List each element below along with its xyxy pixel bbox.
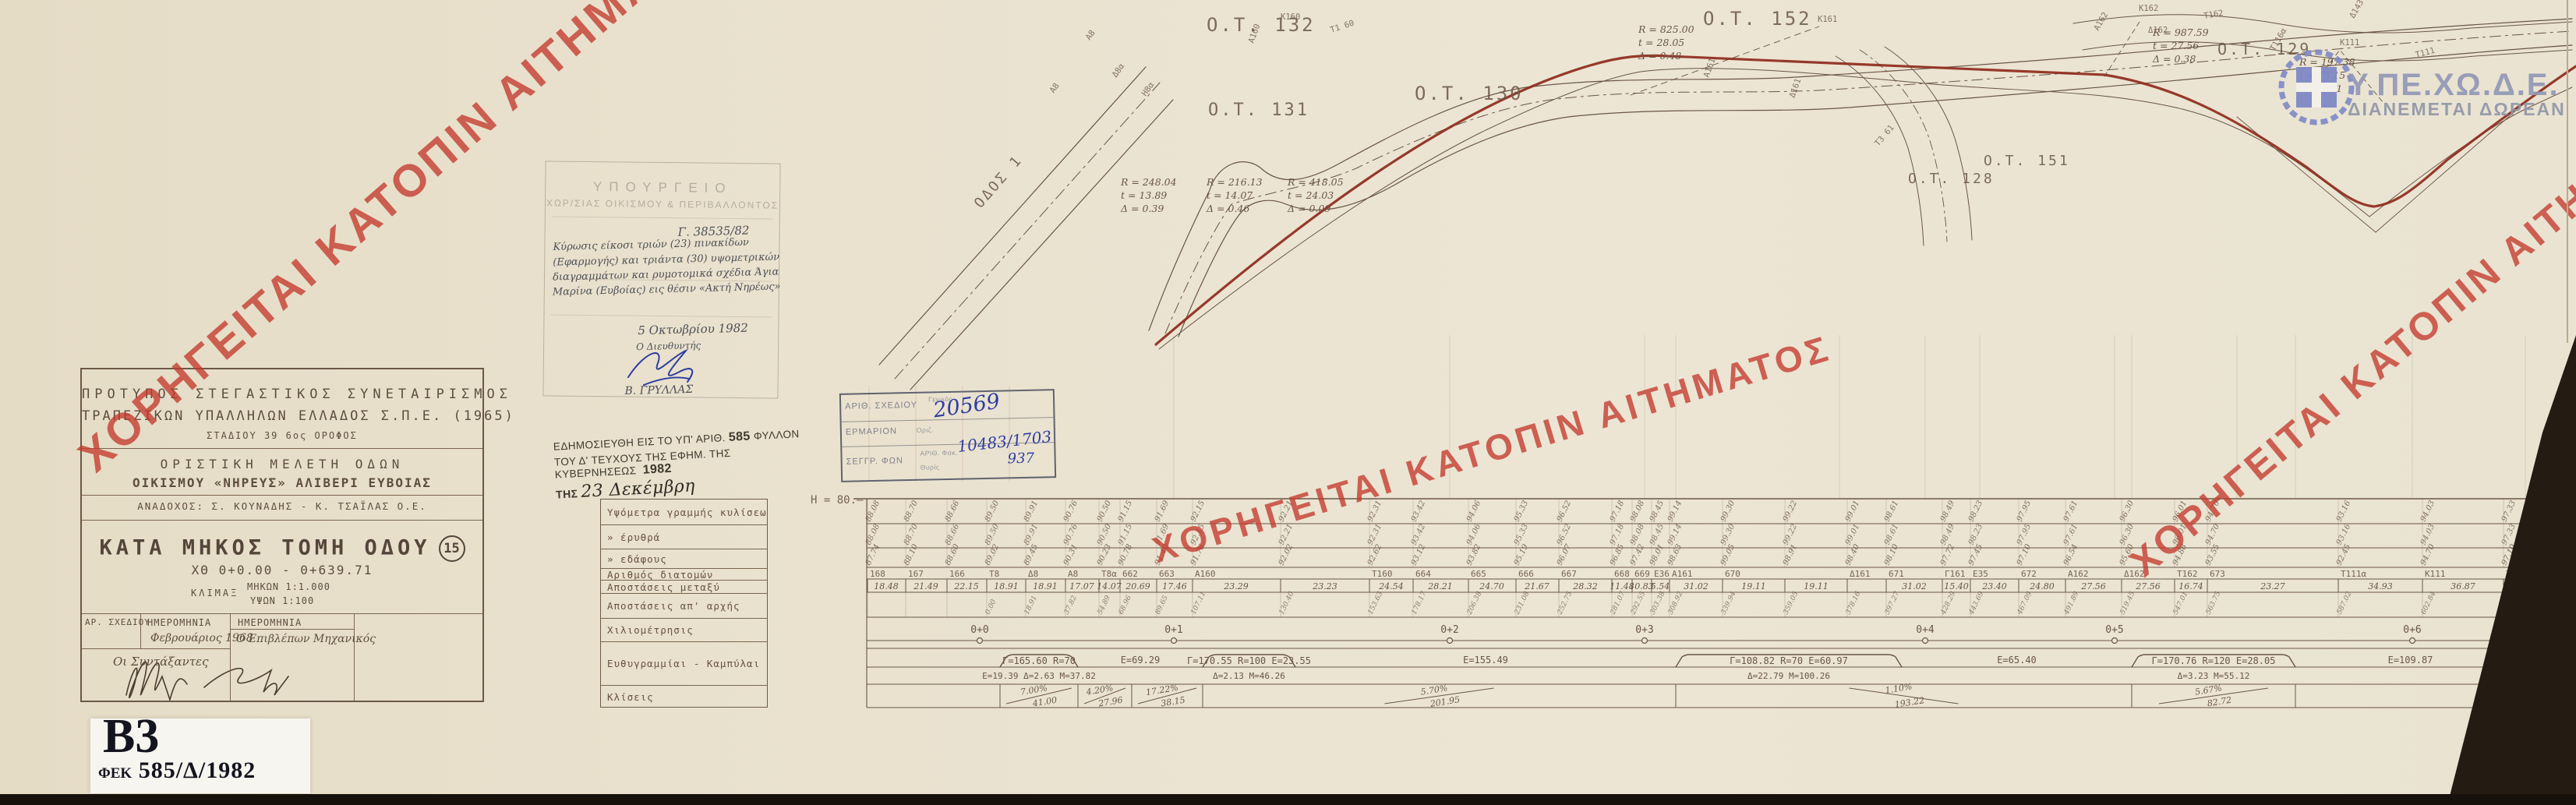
svg-text:88.70: 88.70: [903, 522, 921, 546]
svg-text:99.22: 99.22: [1782, 500, 1799, 524]
svg-text:98.10: 98.10: [1883, 542, 1901, 567]
svg-text:98.23: 98.23: [1967, 523, 1984, 547]
org-name-line2: ΤΡΑΠΕΖΙΚΩΝ ΥΠΑΛΛΗΛΩΝ ΕΛΛΑΔΟΣ Σ.Π.Ε. (196…: [82, 408, 482, 424]
svg-text:19.11: 19.11: [1804, 581, 1829, 591]
svg-text:Κ111: Κ111: [2340, 38, 2359, 48]
svg-text:89.91: 89.91: [1023, 500, 1040, 524]
svg-text:Γ161: Γ161: [1945, 569, 1966, 579]
svg-text:Τ160: Τ160: [1372, 569, 1393, 579]
svg-text:96.54: 96.54: [2062, 543, 2080, 567]
svg-text:O.T. 128: O.T. 128: [1908, 171, 1995, 187]
svg-text:90.31: 90.31: [1062, 543, 1080, 567]
svg-text:Κ161: Κ161: [1818, 15, 1837, 24]
svg-text:90.76: 90.76: [1062, 499, 1080, 523]
svg-text:Δ=3.23 Μ=55.12: Δ=3.23 Μ=55.12: [2178, 671, 2250, 681]
svg-text:97.45: 97.45: [1967, 543, 1984, 567]
svg-text:20.69: 20.69: [1125, 581, 1150, 591]
ministry-dept: ΧΩΡ/ΣΙΑΣ ΟΙΚΙΣΜΟΥ & ΠΕΡΙΒΑΛΛΟΝΤΟΣ: [546, 197, 779, 210]
supervisor-label: Ο Επιβλέπων Μηχανικός: [236, 633, 376, 645]
svg-text:Τ111: Τ111: [2506, 569, 2527, 579]
settlement-name: ΟΙΚΙΣΜΟΥ «ΝΗΡΕΥΣ» ΑΛΙΒΕΡΙ ΕΥΒΟΙΑΣ: [82, 475, 482, 490]
col-date: ΗΜΕΡΟΜΗΝΙΑ: [147, 617, 211, 628]
svg-text:90.23: 90.23: [1096, 543, 1113, 567]
svg-text:94.06: 94.06: [1465, 499, 1483, 523]
svg-text:15.40: 15.40: [1944, 581, 1969, 591]
svg-text:27.56: 27.56: [2135, 581, 2161, 591]
svg-text:664: 664: [1415, 569, 1431, 579]
svg-text:R = 248.04: R = 248.04: [1120, 176, 1177, 188]
svg-text:94.06: 94.06: [1465, 522, 1483, 546]
svg-text:98.49: 98.49: [1939, 522, 1957, 546]
svg-text:Γ=170.55 R=100 Ε=23.55: Γ=170.55 R=100 Ε=23.55: [1187, 655, 1311, 666]
svg-text:82.72: 82.72: [2207, 695, 2232, 709]
svg-text:Ε=65.40: Ε=65.40: [1997, 655, 2037, 666]
svg-text:92.62: 92.62: [1366, 543, 1383, 567]
svg-text:88.60: 88.60: [944, 542, 962, 567]
svg-text:Τ8: Τ8: [989, 569, 999, 579]
svg-text:Δ8α: Δ8α: [1111, 62, 1127, 79]
svg-text:88.66: 88.66: [944, 499, 962, 523]
svg-text:97.61: 97.61: [2062, 523, 2080, 547]
archive-slot-number: 937: [1007, 450, 1034, 468]
svg-text:98.61: 98.61: [1883, 500, 1900, 524]
svg-text:94.70: 94.70: [2204, 522, 2222, 546]
svg-text:93.16: 93.16: [2335, 522, 2353, 546]
svg-text:R = 216.13: R = 216.13: [1206, 176, 1263, 188]
svg-text:92.02: 92.02: [1277, 543, 1295, 567]
svg-text:0+6: 0+6: [2403, 624, 2421, 636]
svg-text:95.33: 95.33: [1513, 523, 1530, 547]
archive-file-number: 10483/1703: [956, 427, 1052, 456]
svg-text:97.18: 97.18: [1609, 500, 1626, 524]
svg-text:Δ = 0.38: Δ = 0.38: [2152, 53, 2196, 65]
svg-text:91.40: 91.40: [1154, 542, 1171, 567]
svg-text:89.50: 89.50: [984, 522, 1002, 546]
svg-text:18.91: 18.91: [994, 581, 1019, 591]
svg-text:98.91: 98.91: [1782, 543, 1799, 567]
svg-text:669: 669: [1634, 569, 1650, 579]
svg-text:89.45: 89.45: [1023, 543, 1040, 567]
svg-text:96.30: 96.30: [2118, 499, 2136, 523]
svg-text:19.11: 19.11: [1741, 581, 1766, 591]
svg-text:Α162: Α162: [2068, 569, 2089, 579]
svg-text:Γ=165.60 R=70: Γ=165.60 R=70: [1002, 655, 1076, 666]
chainage: ΧΘ 0+0.00 - 0+639.71: [82, 563, 482, 577]
svg-text:t = 13.89: t = 13.89: [1121, 189, 1167, 201]
svg-text:R = 825.00: R = 825.00: [1638, 23, 1694, 35]
svg-text:94.70: 94.70: [2204, 499, 2222, 523]
svg-text:24.54: 24.54: [1378, 581, 1404, 591]
svg-text:34.93: 34.93: [2368, 581, 2393, 591]
svg-text:92.31: 92.31: [1366, 500, 1383, 524]
svg-text:667: 667: [1561, 569, 1577, 579]
svg-text:R = 418.05: R = 418.05: [1287, 176, 1344, 188]
svg-text:95.19: 95.19: [1513, 542, 1531, 567]
svg-text:Δ161: Δ161: [1850, 569, 1871, 579]
svg-text:31.02: 31.02: [1684, 581, 1708, 591]
svg-text:99.01: 99.01: [1844, 523, 1861, 547]
svg-text:Α8: Α8: [1084, 28, 1097, 41]
archive-row3-label: ΣΕΓΓΡ. ΦΩΝ: [846, 456, 903, 467]
svg-text:95.33: 95.33: [1513, 500, 1530, 524]
svg-text:Κ160: Κ160: [1281, 12, 1300, 22]
svg-text:4.20%: 4.20%: [1085, 683, 1115, 697]
svg-text:93.82: 93.82: [1465, 543, 1482, 567]
svg-text:92.21: 92.21: [1277, 523, 1295, 547]
svg-text:22.15: 22.15: [953, 581, 979, 591]
svg-text:97.10: 97.10: [2500, 542, 2518, 567]
svg-text:24.80: 24.80: [2029, 581, 2055, 591]
svg-text:92.31: 92.31: [1366, 523, 1383, 547]
svg-text:97.72: 97.72: [1939, 543, 1956, 567]
svg-text:Τ162: Τ162: [2177, 569, 2198, 579]
svg-text:0+4: 0+4: [1916, 624, 1935, 636]
svg-text:97.33: 97.33: [2500, 523, 2518, 547]
svg-text:90.50: 90.50: [1096, 499, 1114, 523]
svg-text:96.01: 96.01: [2171, 523, 2189, 547]
gazette-reference: ΦΕΚ 585/Δ/1982: [98, 757, 256, 784]
svg-text:167: 167: [908, 569, 924, 579]
svg-text:36.87: 36.87: [2451, 581, 2475, 591]
svg-text:666: 666: [1518, 569, 1534, 579]
ministry-name: ΥΠΟΥΡΓΕΙΟ: [546, 178, 779, 196]
svg-text:98.63: 98.63: [1666, 543, 1684, 567]
archive-index-stamp: ΑΡΙΘ. ΣΧΕΔΙΟΥ Γενικός ΕΡΜΑΡΙΟΝ Οριζ. ΣΕΓ…: [839, 389, 1056, 482]
scanned-road-profile-sheet: O.T. 132O.T. 152O.T. 131O.T. 130O.T. 129…: [0, 0, 2576, 805]
svg-text:662: 662: [1122, 569, 1138, 579]
svg-text:Τ3 61: Τ3 61: [1873, 123, 1896, 148]
title-block: ΠΡΟΤΥΠΟΣ ΣΤΕΓΑΣΤΙΚΟΣ ΣΥΝΕΤΑΙΡΙΣΜΟΣ ΤΡΑΠΕ…: [80, 368, 484, 702]
svg-text:Τ8α: Τ8α: [1101, 569, 1117, 579]
sheet-code: B3: [103, 709, 159, 764]
svg-text:17.46: 17.46: [1162, 581, 1187, 591]
stamp-hand-line: (Εφαρμογής) και τριάντα (30) υψομετρικών: [553, 252, 779, 269]
svg-text:Α8: Α8: [1068, 569, 1078, 579]
svg-text:97.18: 97.18: [1609, 523, 1626, 547]
svg-text:1.10%: 1.10%: [1885, 681, 1913, 695]
sheet-code-card: B3 ΦΕΚ 585/Δ/1982: [90, 718, 310, 793]
svg-text:Ε36: Ε36: [1654, 569, 1670, 579]
svg-text:O.T. 130: O.T. 130: [1415, 83, 1524, 104]
archive-row2-label: ΕΡΜΑΡΙΟΝ: [846, 426, 897, 436]
org-name-line1: ΠΡΟΤΥΠΟΣ ΣΤΕΓΑΣΤΙΚΟΣ ΣΥΝΕΤΑΙΡΙΣΜΟΣ: [82, 387, 482, 402]
svg-text:89.91: 89.91: [1023, 523, 1040, 547]
svg-text:Δ = 0.46: Δ = 0.46: [1206, 203, 1249, 214]
svg-text:Ε=19.39 Δ=2.63 Μ=37.82: Ε=19.39 Δ=2.63 Μ=37.82: [982, 671, 1096, 681]
svg-text:94.70: 94.70: [2419, 542, 2437, 567]
svg-text:97.95: 97.95: [2016, 500, 2033, 524]
svg-text:92.45: 92.45: [2335, 543, 2352, 567]
study-title: ΟΡΙΣΤΙΚΗ ΜΕΛΕΤΗ ΟΔΩΝ: [82, 457, 482, 471]
svg-text:14.07: 14.07: [1097, 581, 1122, 591]
scale-length: ΜΗΚΩΝ 1:1.000: [247, 581, 330, 592]
svg-text:ΟΔΟΣ 1: ΟΔΟΣ 1: [971, 152, 1026, 211]
svg-text:Α162: Α162: [2092, 11, 2110, 33]
svg-text:31.02: 31.02: [1902, 581, 1927, 591]
svg-text:99.22: 99.22: [1782, 523, 1799, 547]
svg-text:99.14: 99.14: [1666, 500, 1684, 524]
svg-text:ΔΙΑΝΕΜΕΤΑΙ ΔΩΡΕΑΝ: ΔΙΑΝΕΜΕΤΑΙ ΔΩΡΕΑΝ: [2348, 99, 2566, 119]
svg-text:665: 665: [1471, 569, 1486, 579]
svg-text:96.07: 96.07: [1556, 542, 1574, 567]
svg-text:98.08: 98.08: [1629, 523, 1646, 547]
svg-text:96.85: 96.85: [1609, 543, 1626, 567]
svg-text:27.96: 27.96: [1097, 695, 1123, 709]
svg-text:Α161: Α161: [1672, 569, 1693, 579]
svg-text:0+0: 0+0: [970, 624, 988, 636]
archive-row1-label: ΑΡΙΘ. ΣΧΕΔΙΟΥ: [845, 401, 917, 411]
svg-text:Δ162: Δ162: [2124, 569, 2145, 579]
svg-text:96.52: 96.52: [1556, 500, 1573, 524]
scale-label: ΚΛΙΜΑΞ: [191, 588, 239, 598]
stamp-date: 5 Οκτωβρίου 1982: [638, 321, 748, 337]
svg-text:Ε=155.49: Ε=155.49: [1463, 655, 1508, 666]
svg-text:97.61: 97.61: [2062, 500, 2080, 524]
svg-text:Τ111: Τ111: [2415, 46, 2436, 60]
signer-name: Β. ΓΡΥΛΛΑΣ: [624, 383, 693, 397]
archive-row2-sub: Οριζ.: [917, 425, 934, 433]
svg-text:24.70: 24.70: [1479, 581, 1504, 591]
svg-text:91.76: 91.76: [1189, 542, 1207, 567]
svg-text:92.15: 92.15: [1189, 500, 1207, 524]
svg-text:0+2: 0+2: [1440, 624, 1458, 636]
svg-text:Δ=22.79 Μ=100.26: Δ=22.79 Μ=100.26: [1747, 671, 1830, 681]
svg-text:Ε=109.87: Ε=109.87: [2388, 655, 2433, 666]
svg-text:16.74: 16.74: [2178, 581, 2203, 591]
scale-height: ΥΨΩΝ 1:100: [250, 595, 314, 606]
authors-label: Οι Συντάξαντες: [113, 655, 208, 669]
col-drawing-no: ΑΡ. ΣΧΕΔΙΟΥ: [85, 617, 150, 627]
svg-text:166: 166: [949, 569, 965, 579]
svg-text:90.50: 90.50: [1096, 522, 1114, 546]
svg-text:91.15: 91.15: [1117, 500, 1134, 524]
svg-text:90.78: 90.78: [1117, 543, 1134, 567]
svg-text:90.76: 90.76: [1062, 522, 1080, 546]
svg-text:Α8: Α8: [1048, 81, 1062, 94]
svg-text:23.23: 23.23: [1312, 581, 1337, 591]
svg-text:28.21: 28.21: [1427, 581, 1453, 591]
svg-text:23.29: 23.29: [1223, 581, 1249, 591]
drawing-title: ΚΑΤΑ ΜΗΚΟΣ ΤΟΜΗ ΟΔΟΥ15: [82, 535, 482, 562]
svg-text:98.01: 98.01: [1648, 543, 1666, 567]
svg-text:0.00: 0.00: [984, 598, 998, 616]
svg-text:93.16: 93.16: [2335, 499, 2353, 523]
svg-text:0+3: 0+3: [1635, 624, 1653, 636]
svg-text:99.30: 99.30: [1719, 499, 1737, 523]
svg-text:96.30: 96.30: [2118, 522, 2136, 546]
gazette-publication-stamp: ΕΔΗΜΟΣΙΕΥΘΗ ΕΙΣ ΤΟ ΥΠ' ΑΡΙΘ. 585 ΦΥΛΛΟΝ …: [553, 426, 814, 521]
svg-text:99.05: 99.05: [1719, 543, 1737, 567]
svg-text:O.T. 151: O.T. 151: [1984, 153, 2070, 169]
svg-text:Τ111α: Τ111α: [2341, 569, 2366, 579]
signer-title: Ο Διευθυντής: [636, 340, 701, 352]
svg-text:99.01: 99.01: [1844, 500, 1861, 524]
svg-text:V: V: [2547, 760, 2555, 775]
svg-text:O.T. 131: O.T. 131: [1208, 101, 1309, 120]
svg-text:97.33: 97.33: [2500, 500, 2518, 524]
archive-row3-sub: ΑΡΙΘ. Φακ.: [920, 449, 958, 457]
svg-text:Κ111: Κ111: [2425, 569, 2446, 579]
stamp-hand-line: Κύρωσις είκοσι τριών (23) πινακίδων: [553, 237, 749, 253]
svg-text:91.69: 91.69: [1154, 522, 1171, 546]
svg-text:92.21: 92.21: [1277, 500, 1295, 524]
svg-text:Γ=170.76 R=120 Ε=28.05: Γ=170.76 R=120 Ε=28.05: [2152, 655, 2276, 666]
svg-text:168: 168: [870, 569, 885, 579]
svg-text:663: 663: [1159, 569, 1175, 579]
svg-text:96.01: 96.01: [2171, 500, 2189, 524]
svg-text:95.60: 95.60: [2118, 542, 2136, 567]
svg-text:88.66: 88.66: [944, 522, 962, 546]
svg-text:0+5: 0+5: [2105, 624, 2123, 636]
svg-text:18.48: 18.48: [874, 581, 899, 591]
svg-text:Δ143: Δ143: [2348, 0, 2366, 19]
contractor: ΑΝΑΔΟΧΟΣ: Σ. ΚΟΥΝΑΔΗΣ - Κ. ΤΣΑΪΛΑΣ Ο.Ε.: [82, 500, 482, 512]
svg-text:23.27: 23.27: [2260, 581, 2285, 591]
svg-text:98.49: 98.49: [1939, 499, 1957, 523]
svg-text:Τ162: Τ162: [2203, 9, 2224, 21]
svg-text:89.02: 89.02: [984, 543, 1001, 567]
svg-text:99.14: 99.14: [1666, 523, 1684, 547]
svg-text:89.50: 89.50: [984, 499, 1002, 523]
svg-text:98.23: 98.23: [1967, 500, 1984, 524]
svg-text:671: 671: [1889, 569, 1904, 579]
svg-text:t = 24.03: t = 24.03: [1288, 189, 1334, 201]
svg-text:97.10: 97.10: [2016, 542, 2034, 567]
svg-text:91.15: 91.15: [1117, 523, 1134, 547]
svg-text:98.45: 98.45: [1648, 500, 1666, 524]
svg-text:17.22%: 17.22%: [1145, 683, 1178, 697]
svg-text:Δ = 0.48: Δ = 0.48: [1638, 50, 1681, 62]
svg-text:17.07: 17.07: [1069, 581, 1094, 591]
svg-text:93.12: 93.12: [1410, 543, 1427, 567]
svg-text:672: 672: [2021, 569, 2037, 579]
svg-text:93.55: 93.55: [2204, 543, 2221, 567]
svg-text:96.52: 96.52: [1556, 523, 1573, 547]
svg-text:98.08: 98.08: [1629, 500, 1646, 524]
svg-text:88.70: 88.70: [903, 499, 921, 523]
svg-text:Γ=108.82 R=70 Ε=60.97: Γ=108.82 R=70 Ε=60.97: [1730, 655, 1848, 666]
svg-text:97.95: 97.95: [2016, 523, 2033, 547]
svg-text:99.30: 99.30: [1719, 522, 1737, 546]
svg-text:88.10: 88.10: [903, 542, 921, 567]
svg-text:Ε=69.29: Ε=69.29: [1121, 655, 1161, 666]
svg-text:98.45: 98.45: [1648, 523, 1666, 547]
svg-text:0+1: 0+1: [1164, 624, 1182, 636]
svg-text:670: 670: [1725, 569, 1740, 579]
svg-text:94.03: 94.03: [2419, 500, 2436, 524]
svg-text:21.67: 21.67: [1524, 581, 1549, 591]
archive-row4-sub: Θυρίς: [921, 463, 940, 471]
svg-text:Τ1 60: Τ1 60: [1329, 19, 1355, 35]
svg-text:Δ=2.13 Μ=46.26: Δ=2.13 Μ=46.26: [1213, 671, 1285, 681]
svg-text:28.32: 28.32: [1572, 581, 1598, 591]
ministry-approval-stamp: ΥΠΟΥΡΓΕΙΟ ΧΩΡ/ΣΙΑΣ ΟΙΚΙΣΜΟΥ & ΠΕΡΙΒΑΛΛΟΝ…: [542, 161, 780, 398]
svg-text:23.40: 23.40: [1981, 581, 2007, 591]
svg-text:98.61: 98.61: [1883, 523, 1900, 547]
svg-text:Δ = 0.39: Δ = 0.39: [1120, 203, 1164, 214]
svg-text:5.54: 5.54: [1651, 581, 1670, 591]
svg-text:18.91: 18.91: [1033, 581, 1058, 591]
svg-text:t = 28.05: t = 28.05: [1638, 37, 1684, 48]
svg-text:Υ.ΠΕ.ΧΩ.Δ.Ε.: Υ.ΠΕ.ΧΩ.Δ.Ε.: [2348, 68, 2560, 102]
svg-text:t = 27.56: t = 27.56: [2153, 40, 2199, 51]
svg-text:Α161: Α161: [1702, 57, 1718, 79]
svg-text:Η = 80.—: Η = 80.—: [811, 494, 864, 507]
svg-text:21.49: 21.49: [913, 581, 938, 591]
org-address: ΣΤΑΔΙΟΥ 39 6ος ΟΡΟΦΟΣ: [82, 430, 482, 441]
svg-text:91.69: 91.69: [1154, 499, 1171, 523]
svg-text:93.42: 93.42: [1410, 500, 1427, 524]
svg-text:668: 668: [1614, 569, 1630, 579]
svg-text:97.42: 97.42: [1629, 543, 1646, 567]
svg-text:27.56: 27.56: [2080, 581, 2106, 591]
svg-text:98.40: 98.40: [1844, 542, 1862, 567]
svg-text:Δ161: Δ161: [1788, 77, 1804, 99]
svg-text:Α160: Α160: [1195, 569, 1216, 579]
stamp-hand-line: Μαρίνα (Ευβοίας) εις θέσιν «Ακτή Νηρέως»: [553, 281, 781, 298]
svg-text:t = 14.07: t = 14.07: [1207, 189, 1253, 201]
svg-text:673: 673: [2210, 569, 2225, 579]
road-number-circle: 15: [439, 535, 465, 562]
svg-text:O.T. 152: O.T. 152: [1703, 8, 1812, 30]
svg-text:94.88: 94.88: [2171, 543, 2189, 567]
svg-text:Δ8: Δ8: [1028, 569, 1038, 579]
svg-text:93.42: 93.42: [1410, 523, 1427, 547]
svg-text:Κ162: Κ162: [2139, 4, 2158, 13]
col-date2: ΗΜΕΡΟΜΗΝΙΑ: [238, 617, 302, 628]
svg-text:92.15: 92.15: [1189, 523, 1207, 547]
svg-text:Ε35: Ε35: [1973, 569, 1988, 579]
svg-text:94.03: 94.03: [2419, 523, 2436, 547]
svg-text:Δ = 0.09: Δ = 0.09: [1287, 203, 1330, 214]
svg-text:R = 987.59: R = 987.59: [2152, 26, 2209, 38]
